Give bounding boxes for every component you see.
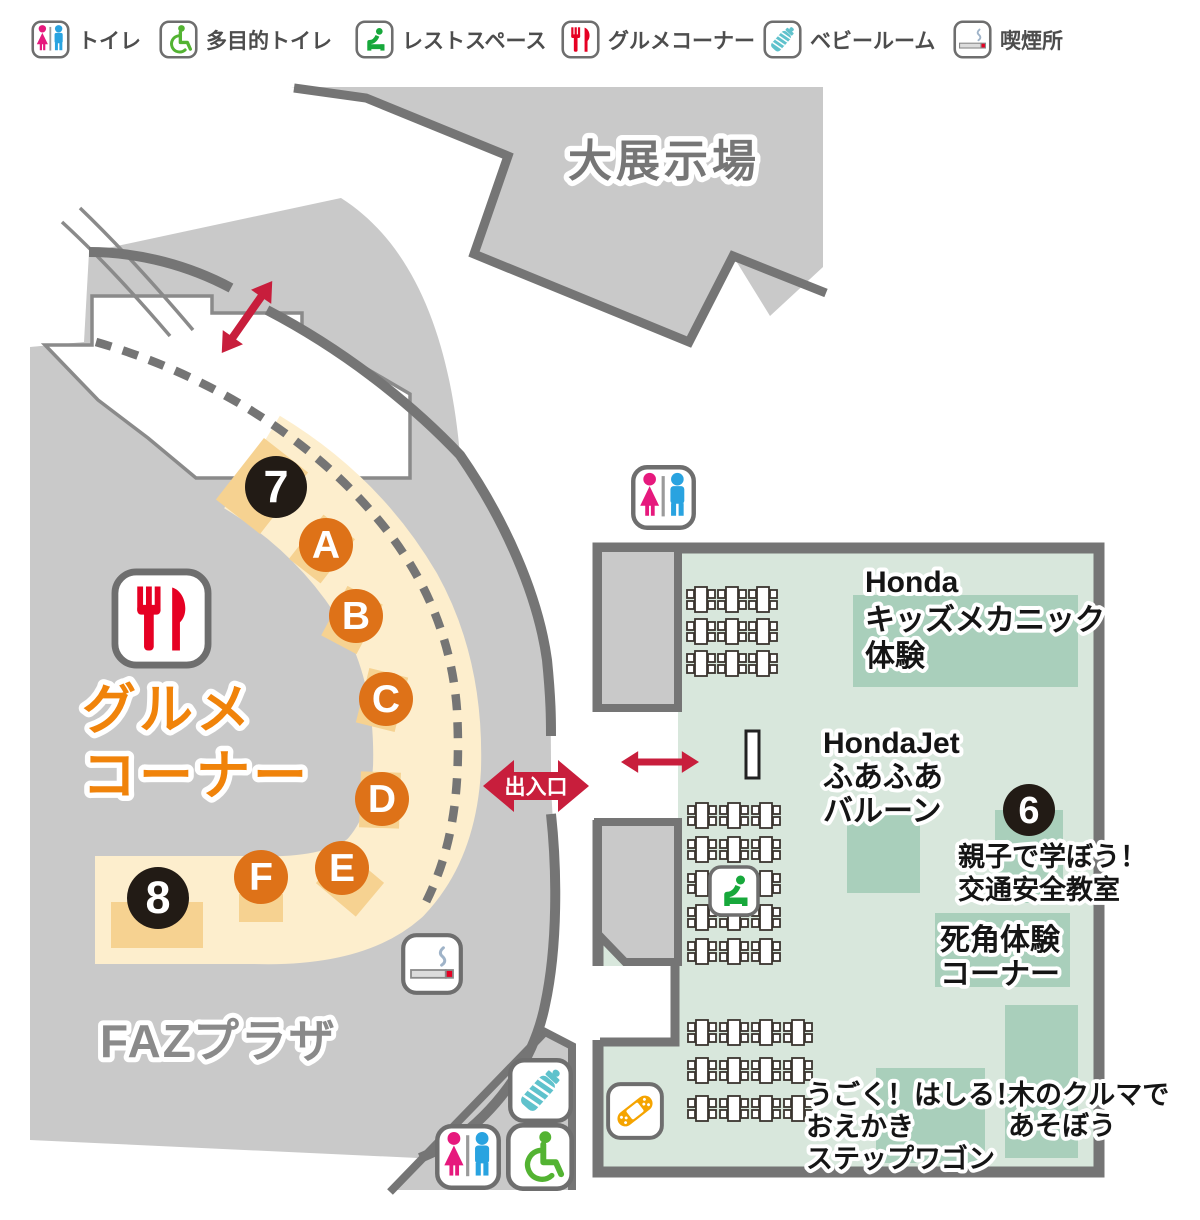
svg-text:あそぼう: あそぼう	[1008, 1111, 1116, 1141]
large-exhibition-hall-label: 大展示場	[568, 137, 760, 186]
svg-text:レストスペース: レストスペース	[402, 30, 546, 53]
legend-toilet-icon	[33, 22, 69, 58]
stall-marker-8: 8	[127, 867, 189, 929]
toilet-icon-top	[633, 467, 693, 527]
gourmet-corner-label-1: グルメ	[82, 680, 253, 740]
legend-baby-room-icon	[765, 22, 801, 58]
svg-text:バルーン: バルーン	[823, 795, 942, 828]
svg-text:体験: 体験	[865, 640, 926, 673]
legend-gourmet-icon	[563, 22, 599, 58]
svg-text:ベビールーム: ベビールーム	[810, 30, 935, 53]
faz-plaza-label: FAZプラザ	[100, 1015, 337, 1067]
svg-text:交通安全教室: 交通安全教室	[958, 874, 1120, 905]
venue-floor-map: 大展示場 FAZプラザ グルメ コーナー Honda キッズメカニック 体験 H…	[0, 0, 1200, 1220]
toilet-icon-bottom	[437, 1126, 498, 1187]
first-aid-icon	[608, 1084, 662, 1138]
rest-space-icon-map	[710, 867, 758, 915]
svg-text:Honda: Honda	[865, 566, 959, 599]
svg-text:喫煙所: 喫煙所	[1000, 29, 1063, 53]
svg-text:多目的トイレ: 多目的トイレ	[206, 29, 332, 53]
gourmet-corner-icon	[115, 572, 208, 665]
booth-number-6: 6	[1003, 784, 1055, 836]
svg-text:F: F	[249, 856, 273, 899]
legend-smoking-icon	[955, 22, 991, 58]
svg-text:B: B	[342, 595, 370, 638]
stall-marker-E: E	[315, 841, 369, 895]
legend: トイレ 多目的トイレ レストスペース グルメコーナー ベビールーム 喫煙所	[33, 22, 1063, 58]
room-alcove-top	[598, 548, 678, 708]
room-opening-bottom	[588, 966, 672, 1040]
legend-accessible-toilet-icon	[161, 22, 197, 58]
svg-text:HondaJet: HondaJet	[823, 727, 960, 760]
svg-text:D: D	[368, 778, 396, 821]
svg-text:8: 8	[145, 872, 170, 923]
stall-marker-D: D	[355, 772, 409, 826]
baby-room-icon-map	[510, 1060, 570, 1120]
svg-text:キッズメカニック: キッズメカニック	[865, 603, 1105, 637]
svg-text:ふあふあ: ふあふあ	[823, 761, 943, 794]
accessible-toilet-icon-map	[508, 1125, 571, 1188]
svg-text:7: 7	[263, 461, 288, 512]
svg-text:ステップワゴン: ステップワゴン	[806, 1143, 995, 1174]
smoking-area-icon	[403, 935, 461, 993]
svg-text:グルメコーナー: グルメコーナー	[608, 29, 755, 53]
svg-text:コーナー: コーナー	[940, 958, 1060, 991]
entrance-label: 出入口	[505, 776, 568, 799]
svg-text:親子で学ぼう！: 親子で学ぼう！	[958, 841, 1147, 872]
svg-text:木のクルマで: 木のクルマで	[1007, 1080, 1169, 1110]
svg-text:C: C	[372, 678, 400, 721]
legend-rest-space-icon	[357, 22, 393, 58]
stall-marker-A: A	[299, 518, 353, 572]
pillar	[746, 731, 759, 778]
svg-text:E: E	[329, 847, 355, 890]
room-alcove-bottom	[598, 822, 678, 962]
svg-text:A: A	[312, 524, 340, 567]
svg-text:6: 6	[1018, 790, 1039, 832]
svg-text:うごく！はしる！: うごく！はしる！	[806, 1079, 1022, 1110]
svg-text:トイレ: トイレ	[78, 30, 141, 53]
stall-marker-B: B	[329, 589, 383, 643]
gourmet-corner-label-2: コーナー	[82, 746, 310, 806]
svg-text:死角体験: 死角体験	[940, 924, 1061, 957]
stall-marker-F: F	[234, 850, 288, 904]
svg-text:おえかき: おえかき	[806, 1112, 914, 1142]
stall-marker-7: 7	[245, 456, 307, 518]
stall-marker-C: C	[359, 672, 413, 726]
